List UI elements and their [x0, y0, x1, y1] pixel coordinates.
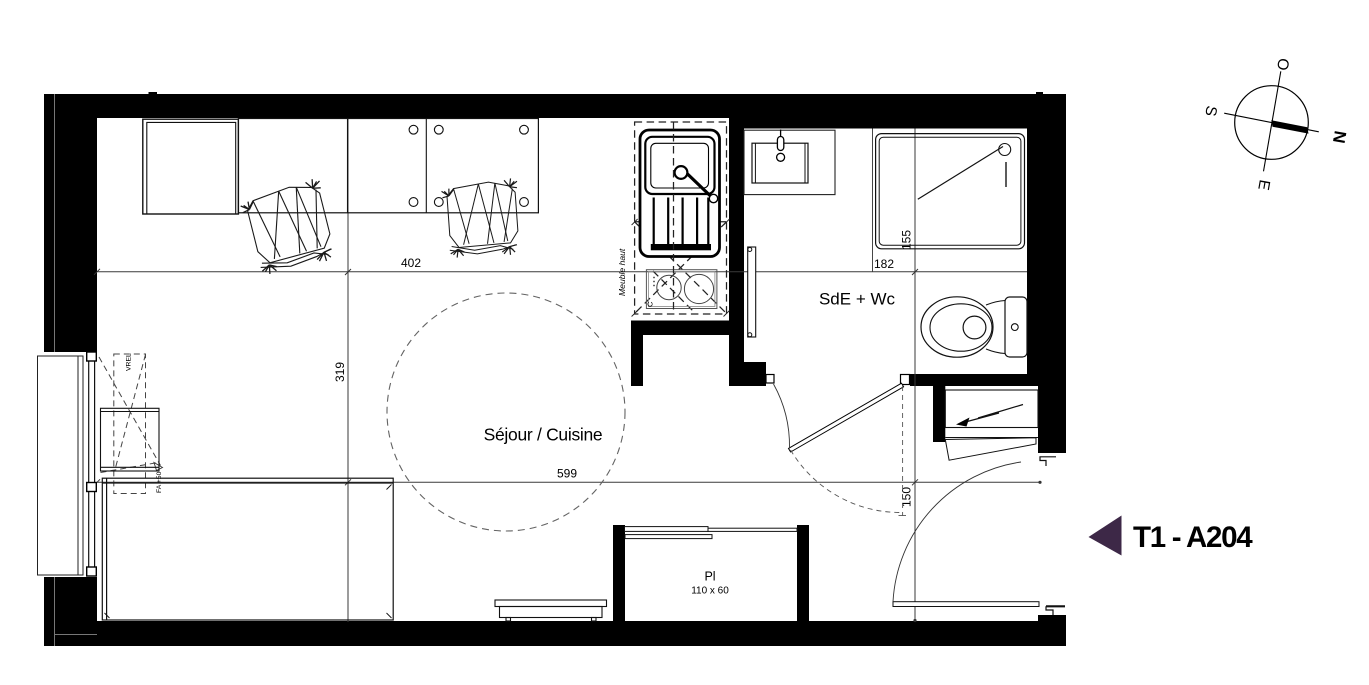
svg-text:FA +50: FA +50	[156, 471, 163, 493]
svg-text:C: C	[646, 301, 655, 307]
svg-text:SdE + Wc: SdE + Wc	[819, 290, 896, 309]
svg-text:110 x 60: 110 x 60	[691, 586, 729, 597]
svg-text:155: 155	[900, 230, 914, 250]
svg-text:319: 319	[333, 362, 347, 382]
svg-text:599: 599	[557, 467, 577, 481]
svg-text:T1 - A204: T1 - A204	[1133, 521, 1253, 554]
svg-text:402: 402	[401, 256, 421, 270]
svg-text:VREL: VREL	[126, 353, 133, 371]
svg-text:Séjour / Cuisine: Séjour / Cuisine	[484, 425, 603, 445]
svg-text:182: 182	[874, 257, 894, 271]
svg-text:Meuble haut: Meuble haut	[617, 248, 627, 296]
svg-text:150: 150	[900, 487, 914, 507]
svg-text:Pl: Pl	[704, 570, 715, 584]
